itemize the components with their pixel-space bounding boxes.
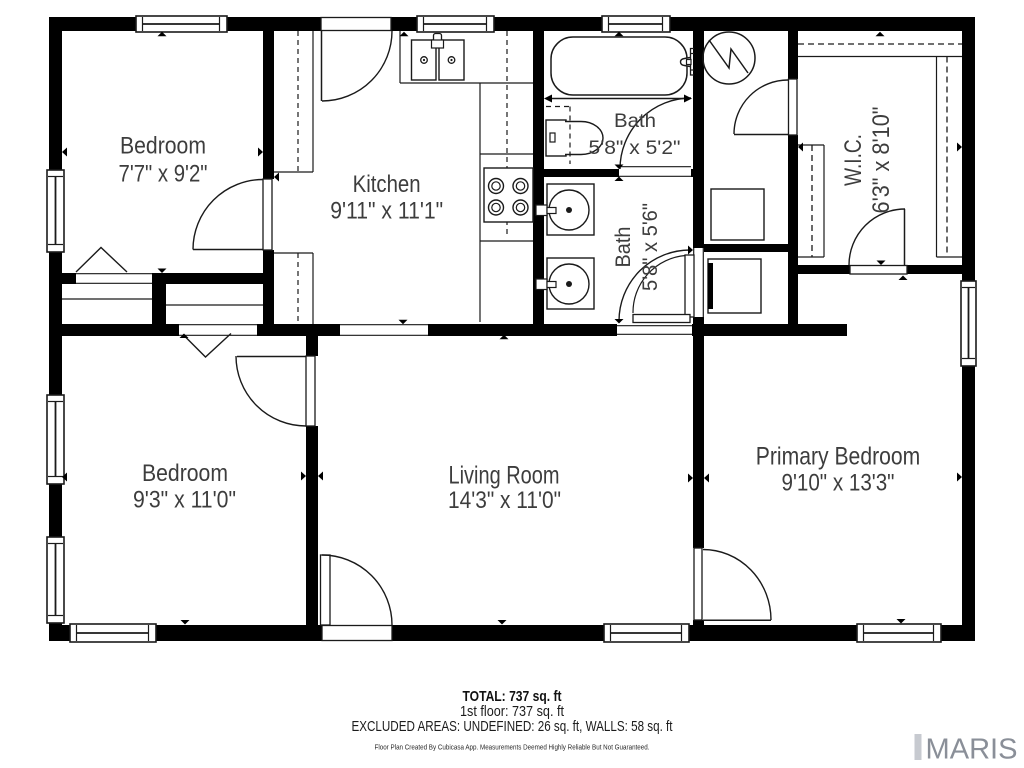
svg-text:9'10" x 13'3": 9'10" x 13'3" bbox=[782, 470, 895, 497]
svg-text:Living Room: Living Room bbox=[449, 462, 560, 490]
svg-text:14'3" x 11'0": 14'3" x 11'0" bbox=[448, 487, 561, 514]
svg-text:W.I.C.: W.I.C. bbox=[840, 134, 867, 186]
svg-text:5'8" x 5'6": 5'8" x 5'6" bbox=[638, 203, 662, 291]
svg-text:7'7" x 9'2": 7'7" x 9'2" bbox=[119, 161, 208, 188]
svg-text:6'3" x 8'10": 6'3" x 8'10" bbox=[868, 107, 895, 214]
svg-text:9'3" x 11'0": 9'3" x 11'0" bbox=[133, 487, 236, 514]
svg-text:Bedroom: Bedroom bbox=[142, 460, 228, 487]
svg-text:9'11" x 11'1": 9'11" x 11'1" bbox=[330, 198, 443, 225]
svg-text:Kitchen: Kitchen bbox=[353, 171, 421, 198]
svg-text:Bath: Bath bbox=[614, 110, 656, 132]
svg-text:Bath: Bath bbox=[611, 227, 635, 268]
svg-text:5'8" x 5'2": 5'8" x 5'2" bbox=[589, 137, 681, 159]
svg-text:EXCLUDED AREAS: UNDEFINED: 26: EXCLUDED AREAS: UNDEFINED: 26 sq. ft, WA… bbox=[352, 718, 674, 735]
svg-text:Bedroom: Bedroom bbox=[120, 133, 206, 160]
svg-text:Primary Bedroom: Primary Bedroom bbox=[756, 443, 921, 471]
svg-text:Floor Plan Created By Cubicasa: Floor Plan Created By Cubicasa App. Meas… bbox=[375, 743, 650, 752]
svg-text:MARIS: MARIS bbox=[926, 734, 1018, 766]
